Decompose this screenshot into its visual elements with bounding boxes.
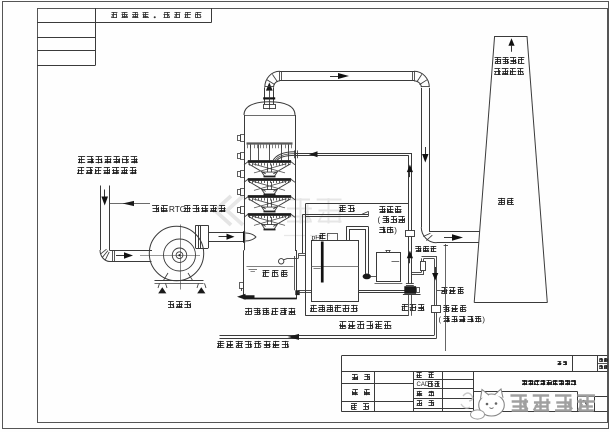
svg-text:CAD: CAD (417, 382, 430, 388)
svg-text:): ) (482, 315, 485, 324)
svg-text:): ) (394, 226, 397, 235)
svg-text:(: ( (439, 315, 442, 324)
svg-text:(: ( (378, 215, 381, 224)
svg-text:pH: pH (312, 234, 321, 241)
